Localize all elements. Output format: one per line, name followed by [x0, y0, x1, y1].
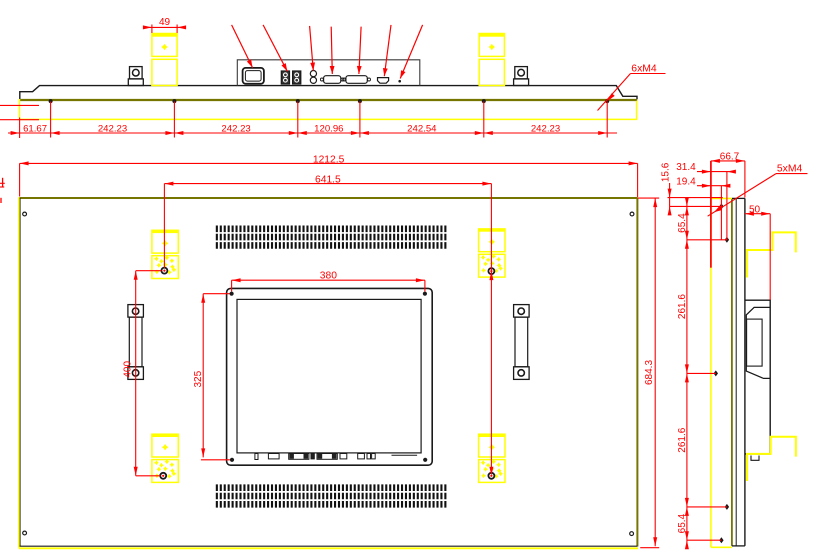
- svg-text:684.3: 684.3: [644, 360, 655, 385]
- svg-text:261.6: 261.6: [677, 294, 688, 319]
- svg-text:31.4: 31.4: [676, 162, 696, 173]
- svg-text:49: 49: [159, 17, 171, 28]
- svg-text:641.5: 641.5: [315, 175, 341, 186]
- svg-text:15.6: 15.6: [660, 162, 671, 182]
- svg-text:61.67: 61.67: [23, 123, 47, 134]
- svg-text:65.4: 65.4: [677, 213, 688, 233]
- svg-text:66.7: 66.7: [720, 152, 740, 163]
- svg-text:120.96: 120.96: [314, 123, 343, 134]
- svg-text:65.4: 65.4: [677, 513, 688, 533]
- svg-text:1212.5: 1212.5: [313, 154, 345, 165]
- svg-text:19.4: 19.4: [676, 177, 696, 188]
- svg-text:242.23: 242.23: [531, 123, 560, 134]
- svg-text:261.6: 261.6: [677, 427, 688, 452]
- svg-text:5xM4: 5xM4: [777, 164, 803, 175]
- svg-text:242.23: 242.23: [98, 123, 127, 134]
- svg-text:400: 400: [123, 361, 134, 378]
- svg-text:242.54: 242.54: [407, 123, 437, 134]
- svg-text:50: 50: [749, 204, 761, 215]
- svg-text:242.23: 242.23: [221, 123, 250, 134]
- svg-text:325: 325: [193, 370, 204, 387]
- svg-text:380: 380: [320, 271, 337, 282]
